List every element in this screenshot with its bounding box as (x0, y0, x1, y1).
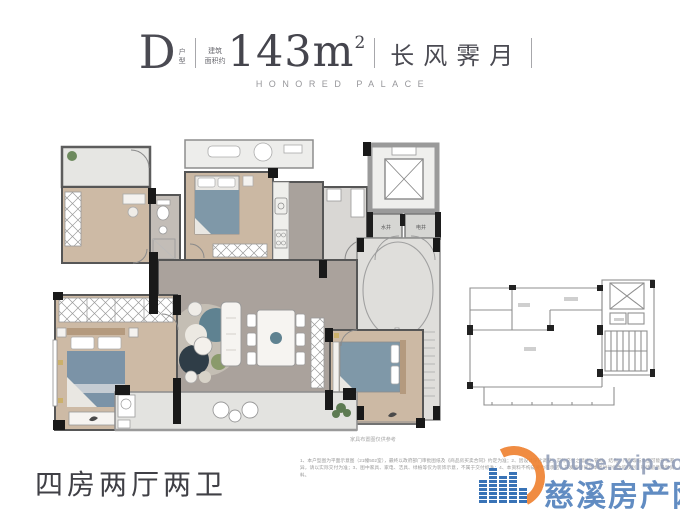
unit-type-label: 户型 (179, 49, 186, 67)
room-bedroom-2 (185, 172, 273, 260)
room-balcony-topmiddle (185, 140, 313, 168)
header: D 户型 建筑 面积约 143m2 长风霁月 HONORED PALACE (0, 33, 680, 89)
buildings-icon (479, 468, 527, 504)
building-bar (489, 468, 497, 504)
plan-caption: 家具布置图仅供参考 (350, 435, 396, 443)
header-row: D 户型 建筑 面积约 143m2 长风霁月 (0, 33, 680, 72)
divider (531, 38, 532, 68)
floorplan-page: D 户型 建筑 面积约 143m2 长风霁月 HONORED PALACE (0, 0, 680, 509)
area-exponent: 2 (354, 33, 365, 53)
room-balcony-bottom (115, 392, 357, 430)
keyplan-label-marks (518, 297, 624, 351)
water-shaft-label: 水井 (381, 224, 391, 231)
building-bar (479, 480, 487, 504)
project-name: 长风霁月 (384, 36, 522, 71)
area-prefix: 建筑 面积约 (205, 47, 226, 65)
building-bar (519, 488, 527, 504)
divider (374, 38, 375, 68)
layout-title: 四房两厅两卫 (35, 463, 227, 503)
elevator-shaft (370, 145, 437, 211)
watermark-logo (479, 450, 547, 506)
divider (195, 38, 196, 68)
watermark-site-name: 慈溪房产网 (544, 471, 680, 509)
floorplan-drawing: 水井 电井 (45, 132, 465, 462)
building-bar (509, 472, 517, 504)
room-bedroom-topleft (62, 187, 150, 263)
area-number: 143m (228, 27, 355, 77)
area-value: 143m2 (228, 33, 366, 72)
room-kitchen (273, 182, 323, 262)
electric-shaft-label: 电井 (416, 224, 426, 231)
keyplan-drawing (452, 275, 667, 423)
project-name-en: HONORED PALACE (0, 79, 680, 89)
room-balcony-topleft (62, 147, 150, 187)
area-prefix-line2: 面积约 (205, 57, 226, 66)
area-prefix-line1: 建筑 (205, 47, 226, 56)
building-bar (499, 476, 507, 504)
unit-letter: D (139, 33, 176, 72)
utility-shafts: 水井 电井 (367, 212, 441, 240)
